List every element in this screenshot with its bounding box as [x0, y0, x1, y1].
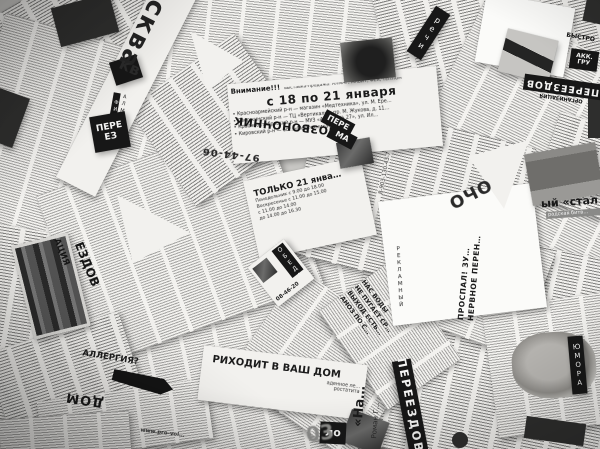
yumora-label: ЮМОРА	[572, 342, 583, 387]
dark-dot	[452, 432, 468, 448]
banner-akk-gru: АКК. ГРУ	[569, 48, 600, 72]
gru-label: ГРУ	[577, 59, 591, 67]
pobeda-photo	[252, 258, 277, 283]
newspaper-collage: осква кв ФИЛЬ АЛМА ПЕРЕЕЗ Внимание!!! вы…	[0, 0, 600, 449]
banner-pereez-box: ПЕРЕЕЗ	[89, 111, 131, 153]
dark-corner-piece	[582, 0, 600, 25]
